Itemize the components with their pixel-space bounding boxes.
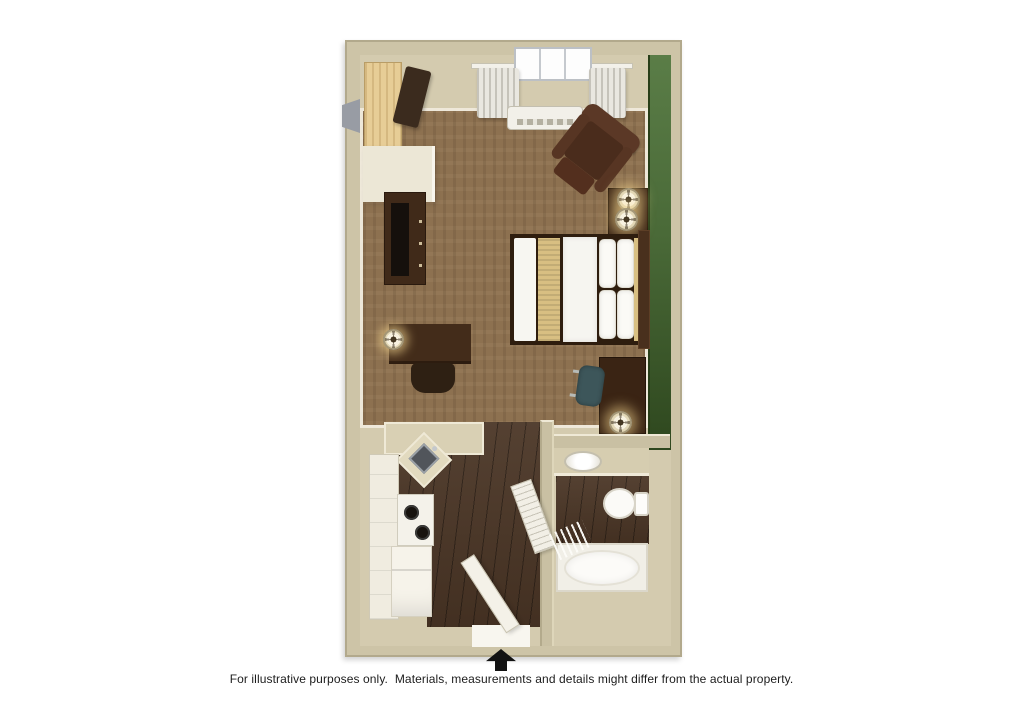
nightstand-lamp-2	[615, 208, 638, 231]
dresser-handles	[419, 211, 422, 267]
bathroom-vanity	[554, 448, 649, 476]
entry-door-opening	[472, 625, 530, 647]
refrigerator	[391, 546, 432, 617]
pillow	[599, 239, 616, 288]
disclaimer-text: For illustrative purposes only. Material…	[0, 672, 1023, 686]
green-accent-wall	[648, 55, 671, 450]
floor-plan-page: For illustrative purposes only. Material…	[0, 0, 1023, 716]
vanity-sink	[564, 451, 602, 472]
pillow	[599, 290, 616, 339]
floor-plan	[345, 40, 682, 657]
side-desk-chair	[411, 363, 455, 393]
stove-burner	[404, 505, 419, 520]
stove-burner	[415, 525, 430, 540]
toilet-tank	[634, 492, 649, 516]
queen-bed	[510, 234, 650, 345]
pillow	[617, 239, 634, 288]
office-chair-arm	[570, 393, 576, 397]
pillow	[617, 290, 634, 339]
office-chair-arm	[573, 370, 579, 374]
refrigerator-door-line	[392, 569, 431, 571]
two-burner-stove	[397, 494, 434, 546]
headboard	[638, 230, 650, 349]
bathtub-basin	[564, 550, 640, 586]
utility-notch	[342, 99, 360, 133]
bathroom-top-wall	[554, 434, 670, 448]
work-desk-lamp	[609, 411, 632, 434]
bed-duvet	[563, 237, 597, 342]
bed-runner	[538, 238, 560, 341]
bed-foot-linen	[514, 238, 536, 341]
office-chair	[570, 362, 610, 412]
television	[391, 203, 409, 276]
side-desk-lamp	[383, 329, 404, 350]
tv-dresser	[384, 192, 426, 285]
window	[514, 47, 592, 81]
toilet-bowl	[603, 488, 636, 519]
office-chair-seat	[574, 364, 605, 407]
